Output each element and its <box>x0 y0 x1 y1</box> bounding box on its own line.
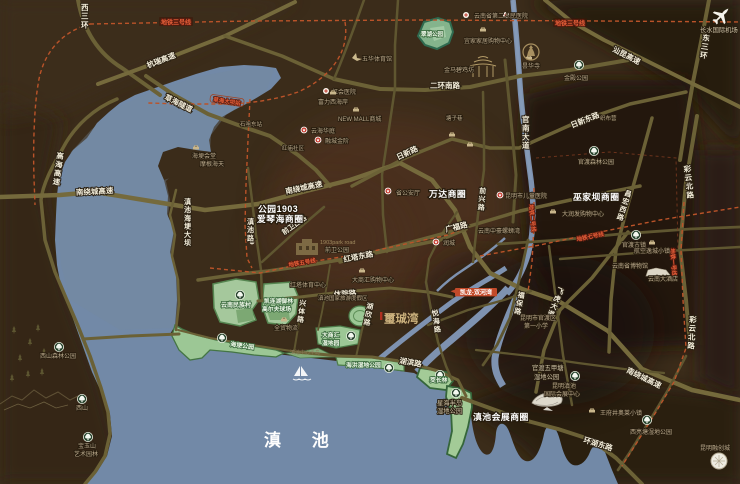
svg-text:地铁三号线: 地铁三号线 <box>161 19 191 27</box>
svg-text:高尔夫球场: 高尔夫球场 <box>262 305 291 313</box>
svg-text:官渡森林公园: 官渡森林公园 <box>578 158 614 166</box>
svg-text:璽珹湾: 璽珹湾 <box>383 312 419 326</box>
svg-text:大商汇: 大商汇 <box>322 331 340 339</box>
svg-text:昆明滇池: 昆明滇池 <box>552 382 576 390</box>
svg-text:昆明市官渡区: 昆明市官渡区 <box>520 314 556 322</box>
svg-text:官南大道: 官南大道 <box>522 114 530 150</box>
svg-text:航空逸城小镇: 航空逸城小镇 <box>634 247 670 255</box>
svg-text:织布营: 织布营 <box>600 114 617 122</box>
svg-text:公园1903: 公园1903 <box>258 204 298 214</box>
svg-text:凯连湖御林: 凯连湖御林 <box>264 297 293 305</box>
svg-text:云南中豪螺蛳湾: 云南中豪螺蛳湾 <box>478 227 520 235</box>
svg-text:艺术园林: 艺术园林 <box>74 450 98 458</box>
svg-text:金马碧鸡坊: 金马碧鸡坊 <box>444 66 474 74</box>
svg-text:西山森林公园: 西山森林公园 <box>40 352 76 360</box>
svg-text:二环南路: 二环南路 <box>430 80 460 90</box>
svg-text:石咀东站: 石咀东站 <box>240 120 263 128</box>
svg-text:云南民族村: 云南民族村 <box>221 301 251 309</box>
svg-text:王府井奥莱小镇: 王府井奥莱小镇 <box>600 409 642 417</box>
svg-text:滇池会展商圈: 滇池会展商圈 <box>473 411 529 422</box>
svg-text:长水国际机场: 长水国际机场 <box>700 25 738 34</box>
svg-text:大润发购物中心: 大润发购物中心 <box>562 210 604 218</box>
svg-text:第一小学: 第一小学 <box>524 322 548 330</box>
svg-text:宝玉山: 宝玉山 <box>78 442 96 450</box>
svg-text:官渡五甲塘: 官渡五甲塘 <box>532 363 563 372</box>
svg-text:巫家坝商圈: 巫家坝商圈 <box>573 191 620 202</box>
svg-text:地铁三号线: 地铁三号线 <box>555 20 585 28</box>
svg-text:宜家家居购物中心: 宜家家居购物中心 <box>464 37 512 45</box>
svg-text:云南省第二人民医院: 云南省第二人民医院 <box>474 12 528 20</box>
svg-text:滇池路: 滇池路 <box>247 217 255 242</box>
svg-text:滇池海埂大坝: 滇池海埂大坝 <box>184 197 192 247</box>
svg-text:塘子巷: 塘子巷 <box>446 114 463 122</box>
svg-text:湿地公园: 湿地公园 <box>534 372 559 381</box>
svg-text:西亮塘湿地公园: 西亮塘湿地公园 <box>630 428 672 436</box>
svg-text:富力西海岸: 富力西海岸 <box>318 98 348 106</box>
svg-text:五华体育馆: 五华体育馆 <box>362 55 392 63</box>
svg-text:融城金阶: 融城金阶 <box>325 137 349 145</box>
svg-text:全贸物流: 全贸物流 <box>274 324 298 332</box>
svg-text:昆明融创城: 昆明融创城 <box>700 444 730 452</box>
svg-text:摩根海天: 摩根海天 <box>200 160 224 168</box>
svg-text:茭长林: 茭长林 <box>430 376 448 384</box>
svg-text:云南大酒店: 云南大酒店 <box>648 275 678 283</box>
svg-text:海埂会堂: 海埂会堂 <box>192 152 216 160</box>
svg-text:昙华寺: 昙华寺 <box>522 62 540 70</box>
svg-text:万达商圈: 万达商圈 <box>428 188 466 199</box>
svg-text:润城: 润城 <box>443 239 455 247</box>
svg-text:翠湖公园: 翠湖公园 <box>421 30 444 38</box>
svg-text:1903park road: 1903park road <box>320 240 355 246</box>
svg-text:西山: 西山 <box>76 404 88 412</box>
svg-text:湿地园: 湿地园 <box>322 339 340 347</box>
svg-text:滇池国家旅游度假区: 滇池国家旅游度假区 <box>318 294 368 302</box>
svg-text:南绕城高速: 南绕城高速 <box>76 185 114 197</box>
svg-text:凯龙·双河湾: 凯龙·双河湾 <box>460 288 492 296</box>
svg-text:国际会展中心: 国际会展中心 <box>544 390 580 398</box>
svg-text:官渡古镇: 官渡古镇 <box>622 241 646 249</box>
svg-text:红庙社区: 红庙社区 <box>282 144 305 152</box>
svg-text:星海半岛: 星海半岛 <box>437 398 462 407</box>
svg-text:金殿公园: 金殿公园 <box>564 74 588 82</box>
svg-text:昆明市儿童医院: 昆明市儿童医院 <box>505 192 547 200</box>
svg-text:云南省博物馆: 云南省博物馆 <box>612 262 648 270</box>
svg-text:海洪湿地公园: 海洪湿地公园 <box>346 361 381 369</box>
svg-text:前卫公园: 前卫公园 <box>325 246 349 254</box>
svg-text:爱琴海商圈: 爱琴海商圈 <box>257 213 304 224</box>
svg-text:NEW MALL商城: NEW MALL商城 <box>338 115 381 123</box>
svg-text:云海华庭: 云海华庭 <box>311 127 335 135</box>
svg-text:大商汇购物中心: 大商汇购物中心 <box>352 276 394 284</box>
svg-text:省公安厅: 省公安厅 <box>396 189 420 197</box>
svg-text:滇池中心半岛: 滇池中心半岛 <box>290 349 320 356</box>
svg-text:红塔体育中心: 红塔体育中心 <box>290 281 326 289</box>
svg-text:湿地公园: 湿地公园 <box>437 406 462 415</box>
svg-text:西三环: 西三环 <box>81 3 89 29</box>
svg-text:滇 池: 滇 池 <box>264 430 342 450</box>
